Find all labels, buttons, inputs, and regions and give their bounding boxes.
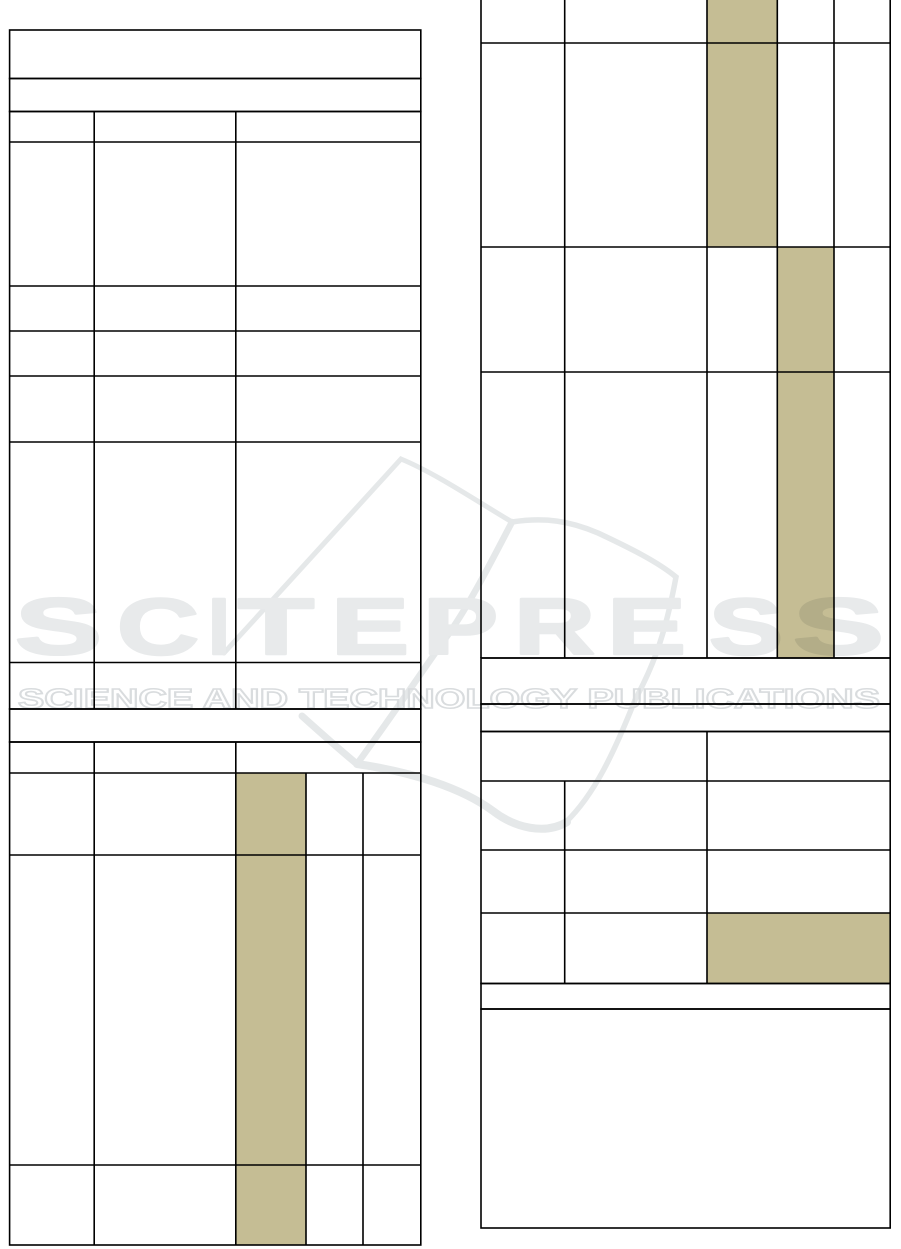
svg-text:E: E: [607, 582, 686, 671]
svg-text:I: I: [208, 582, 230, 671]
svg-text:E: E: [331, 582, 409, 671]
svg-text:P: P: [423, 582, 498, 671]
svg-text:SCIENCE AND TECHNOLOGY PUBLICA: SCIENCE AND TECHNOLOGY PUBLICATIONS: [18, 683, 880, 714]
svg-text:T: T: [238, 582, 314, 671]
svg-text:S: S: [709, 582, 783, 671]
svg-text:S: S: [793, 582, 884, 671]
svg-text:S: S: [15, 582, 102, 671]
svg-text:R: R: [514, 582, 595, 671]
svg-text:C: C: [117, 582, 199, 671]
